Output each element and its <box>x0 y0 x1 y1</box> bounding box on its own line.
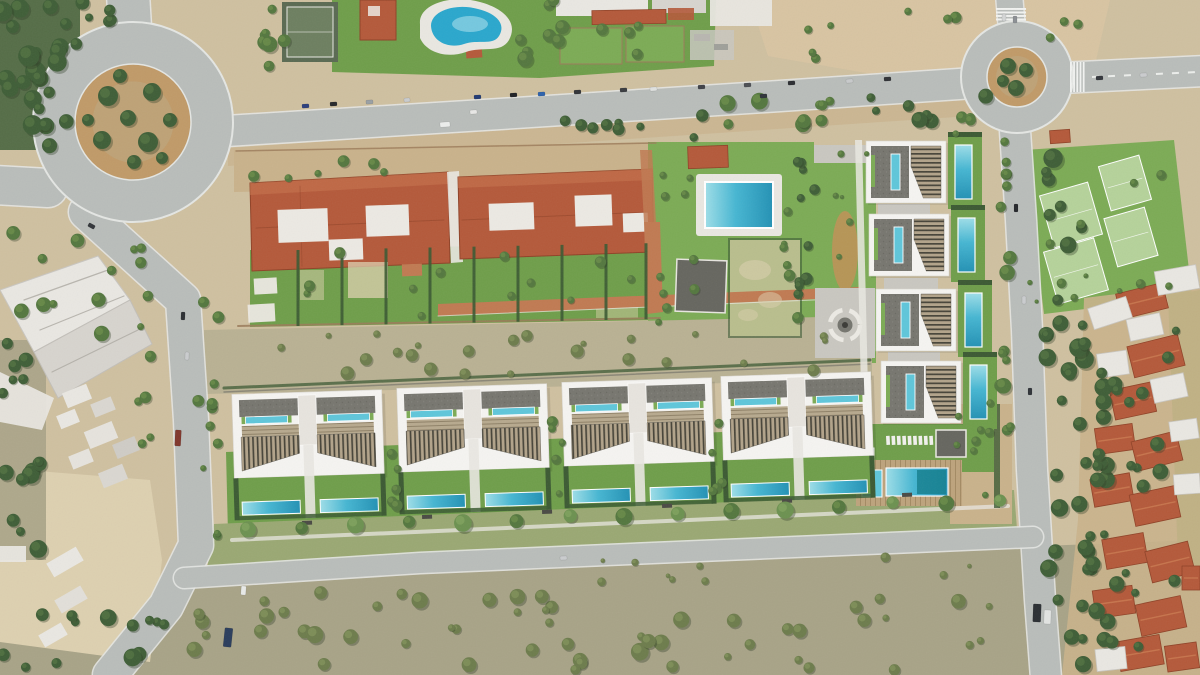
photo-grain <box>0 0 1200 675</box>
grain-overlay <box>0 0 1200 675</box>
aerial-photo <box>0 0 1200 675</box>
aerial-photo-canvas <box>0 0 1200 675</box>
